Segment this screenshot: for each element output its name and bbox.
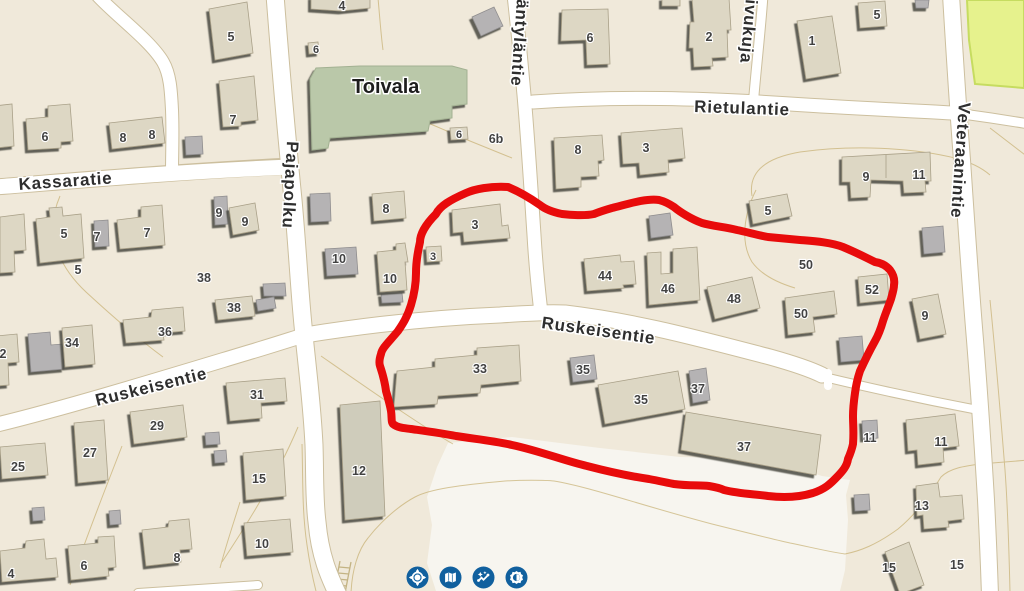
svg-text:31: 31	[250, 388, 264, 402]
svg-text:36: 36	[158, 325, 172, 339]
svg-text:8: 8	[120, 131, 127, 145]
svg-text:5: 5	[874, 8, 881, 22]
svg-text:1: 1	[809, 34, 816, 48]
svg-text:9: 9	[863, 170, 870, 184]
svg-text:8: 8	[575, 143, 582, 157]
svg-text:11: 11	[863, 431, 876, 445]
svg-text:9: 9	[242, 215, 249, 229]
svg-text:Toivala: Toivala	[352, 76, 420, 98]
svg-text:15: 15	[882, 561, 896, 575]
svg-text:10: 10	[255, 537, 269, 551]
svg-text:38: 38	[227, 301, 241, 315]
svg-text:5: 5	[75, 263, 82, 277]
svg-text:29: 29	[150, 419, 164, 433]
svg-text:7: 7	[144, 226, 151, 240]
svg-text:3: 3	[430, 251, 436, 263]
svg-text:25: 25	[11, 460, 25, 474]
svg-text:8: 8	[149, 128, 156, 142]
svg-text:35: 35	[576, 363, 590, 377]
svg-text:52: 52	[865, 283, 879, 297]
svg-text:7: 7	[94, 230, 101, 244]
svg-text:Rietulantie: Rietulantie	[694, 97, 790, 119]
svg-text:3: 3	[472, 218, 479, 232]
svg-text:15: 15	[950, 558, 964, 572]
svg-text:3: 3	[643, 141, 650, 155]
svg-text:46: 46	[661, 282, 675, 296]
svg-text:6: 6	[313, 44, 319, 56]
svg-text:2: 2	[706, 30, 713, 44]
svg-text:33: 33	[473, 362, 487, 376]
svg-text:4: 4	[339, 0, 346, 13]
svg-text:5: 5	[61, 227, 68, 241]
svg-text:10: 10	[332, 252, 346, 266]
svg-text:50: 50	[799, 258, 813, 272]
svg-text:35: 35	[634, 393, 648, 407]
svg-text:6: 6	[587, 31, 594, 45]
svg-text:6: 6	[81, 559, 88, 573]
svg-text:2: 2	[0, 347, 7, 361]
svg-text:27: 27	[83, 446, 97, 460]
svg-text:9: 9	[216, 206, 223, 220]
svg-text:34: 34	[65, 336, 79, 350]
svg-text:37: 37	[737, 440, 751, 454]
svg-text:9: 9	[922, 309, 929, 323]
svg-text:11: 11	[912, 168, 925, 182]
svg-text:37: 37	[691, 382, 705, 396]
svg-text:6: 6	[42, 130, 49, 144]
svg-text:50: 50	[794, 307, 808, 321]
svg-text:44: 44	[598, 269, 612, 283]
svg-text:6b: 6b	[489, 132, 504, 146]
svg-text:38: 38	[197, 271, 211, 285]
svg-text:8: 8	[383, 202, 390, 216]
svg-text:8: 8	[174, 551, 181, 565]
svg-text:15: 15	[252, 472, 266, 486]
svg-text:13: 13	[915, 499, 929, 513]
svg-text:11: 11	[934, 435, 947, 449]
svg-text:7: 7	[230, 113, 237, 127]
svg-text:4: 4	[8, 567, 15, 581]
svg-text:48: 48	[727, 292, 741, 306]
svg-text:5: 5	[228, 30, 235, 44]
svg-text:5: 5	[765, 204, 772, 218]
svg-text:12: 12	[352, 464, 366, 478]
svg-text:6: 6	[456, 129, 462, 141]
svg-text:10: 10	[383, 272, 397, 286]
